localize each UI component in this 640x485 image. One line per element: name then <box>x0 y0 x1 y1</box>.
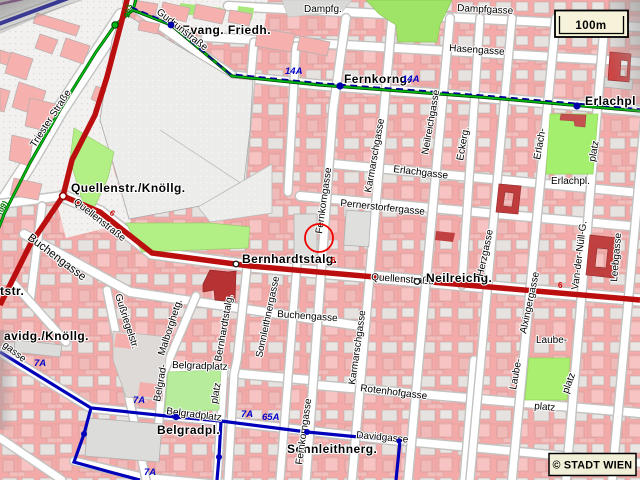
svg-text:7A: 7A <box>133 395 145 406</box>
svg-text:avidg./Knöllg.: avidg./Knöllg. <box>4 329 89 343</box>
svg-text:© STADT WIEN: © STADT WIEN <box>553 460 633 472</box>
svg-text:Bernhardtstalg.: Bernhardtstalg. <box>242 252 337 266</box>
svg-text:Erlachpl: Erlachpl <box>585 94 636 108</box>
svg-text:65A: 65A <box>262 412 280 423</box>
svg-text:Laube-: Laube- <box>536 335 567 346</box>
svg-text:Dampfg.: Dampfg. <box>304 4 342 15</box>
svg-text:7A: 7A <box>241 409 253 420</box>
svg-text:Quellenstr./Knöllg.: Quellenstr./Knöllg. <box>71 181 186 195</box>
svg-text:Erlachpl.: Erlachpl. <box>551 176 590 187</box>
svg-text:6: 6 <box>331 256 336 265</box>
svg-text:Belgradplatz: Belgradplatz <box>172 360 228 373</box>
svg-text:14A: 14A <box>402 74 420 85</box>
svg-text:Belgradpl.: Belgradpl. <box>157 423 220 437</box>
svg-text:100m: 100m <box>575 20 606 32</box>
svg-text:6: 6 <box>558 281 563 290</box>
svg-text:7A: 7A <box>144 467 156 478</box>
svg-text:14A: 14A <box>285 66 303 77</box>
svg-text:7A: 7A <box>34 358 46 369</box>
svg-text:tstr.: tstr. <box>0 284 24 298</box>
svg-text:platz: platz <box>534 401 556 414</box>
